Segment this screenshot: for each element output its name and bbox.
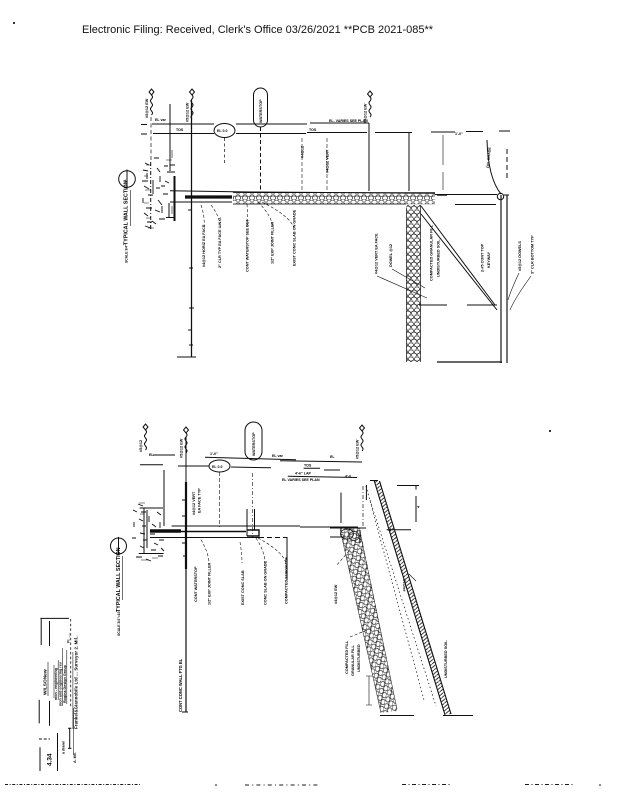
svg-text:Fl. ....: Fl. ....: [67, 633, 71, 643]
svg-text:1/2" EXP JOINT FILLER: 1/2" EXP JOINT FILLER: [271, 222, 275, 264]
svg-text:#4@12: #4@12: [301, 146, 305, 158]
svg-text:COMPACTED FILL: COMPACTED FILL: [345, 640, 349, 674]
svg-text:EL 0.0: EL 0.0: [217, 129, 228, 133]
svg-text:4: 4: [417, 506, 421, 508]
svg-text:EL var: EL var: [155, 118, 167, 122]
svg-text:#4@12 VERT: #4@12 VERT: [192, 491, 196, 515]
svg-text:TYPICAL WALL SECTION: TYPICAL WALL SECTION: [116, 547, 122, 612]
svg-text:a drawn: a drawn: [62, 741, 66, 754]
svg-text:2" CLR TYP EA FACE U.N.O.: 2" CLR TYP EA FACE U.N.O.: [218, 217, 222, 268]
svg-text:#5@12 EW: #5@12 EW: [145, 98, 149, 118]
svg-text:UNDISTURBED SOIL: UNDISTURBED SOIL: [437, 239, 441, 277]
svg-text:SCALE 3/4"=10: SCALE 3/4"=10: [117, 611, 121, 636]
svg-text:WATERSTOP: WATERSTOP: [259, 99, 263, 123]
svg-text:EXIST CONC SLAB: EXIST CONC SLAB: [241, 570, 245, 605]
svg-text:#4@12 HORIZ EA FACE: #4@12 HORIZ EA FACE: [202, 224, 206, 267]
svg-text:#4@12 EW: #4@12 EW: [334, 584, 338, 604]
svg-text:DOWEL @12: DOWEL @12: [389, 244, 393, 267]
svg-text:COMPACTED GRANULAR FILL: COMPACTED GRANULAR FILL: [430, 224, 434, 281]
svg-text:4.34: 4.34: [47, 753, 54, 766]
svg-text:EL: EL: [330, 455, 335, 459]
svg-text:#5@12 EW: #5@12 EW: [180, 438, 184, 458]
svg-text:EXIST CONC SLAB ON GRADE: EXIST CONC SLAB ON GRADE: [293, 209, 297, 266]
svg-text:Frankel&Giannobile Ltd ... Sur: Frankel&Giannobile Ltd ... Surveyor 2. M…: [74, 635, 79, 729]
svg-text:1'-0": 1'-0": [455, 132, 463, 136]
svg-text:#5@12 EW: #5@12 EW: [356, 439, 360, 459]
svg-text:2-#5 CONT TOP: 2-#5 CONT TOP: [481, 243, 485, 272]
svg-text:FIN. GRADE: FIN. GRADE: [486, 146, 492, 168]
svg-text:TOS: TOS: [309, 128, 317, 132]
svg-text:EL 0.0: EL 0.0: [212, 465, 223, 469]
svg-text:#4@12 VERT EA FACE: #4@12 VERT EA FACE: [375, 233, 379, 274]
svg-text:EL VARIES SEE PLAN: EL VARIES SEE PLAN: [282, 478, 320, 482]
svg-text:Electronic Filing: Received, C: Electronic Filing: Received, Clerk's Off…: [82, 24, 434, 36]
svg-text:Rogina Design Group: Rogina Design Group: [63, 664, 67, 703]
svg-text:1'-0": 1'-0": [210, 452, 218, 456]
svg-text:WILSONew: WILSONew: [43, 669, 49, 695]
svg-text:#5@12 EW: #5@12 EW: [364, 103, 368, 123]
svg-text:UNDISTURBED: UNDISTURBED: [357, 644, 361, 672]
svg-text:KEYWAY: KEYWAY: [487, 251, 491, 268]
svg-text:UNDISTURBED SOIL: UNDISTURBED SOIL: [444, 640, 448, 678]
svg-text:3" CLR BOTTOM TYP: 3" CLR BOTTOM TYP: [531, 235, 535, 274]
svg-text:EL. VARIES SEE PLAN: EL. VARIES SEE PLAN: [329, 119, 368, 123]
svg-text:EA FACE TYP: EA FACE TYP: [198, 488, 202, 513]
svg-text:#4@12 VERT: #4@12 VERT: [326, 149, 330, 173]
svg-text:EL var: EL var: [272, 454, 284, 458]
svg-text:#5@12 DOWELS: #5@12 DOWELS: [518, 241, 522, 271]
svg-text:TYPICAL WALL SECTION: TYPICAL WALL SECTION: [124, 180, 130, 245]
svg-text:#4@12: #4@12: [403, 579, 407, 591]
svg-text:GRANULAR FILL: GRANULAR FILL: [351, 645, 355, 676]
svg-text:CONC SLAB ON GRADE: CONC SLAB ON GRADE: [264, 560, 268, 605]
svg-text:4'-6" LAP: 4'-6" LAP: [295, 472, 312, 476]
svg-text:WATERSTOP: WATERSTOP: [252, 432, 256, 456]
svg-text:CONT WATERSTOP: CONT WATERSTOP: [194, 566, 198, 602]
svg-text:EL: EL: [149, 453, 154, 457]
svg-text:CONT WATERSTOP SEE DET: CONT WATERSTOP SEE DET: [246, 219, 250, 272]
svg-text:1/2" EXP JOINT FILLER: 1/2" EXP JOINT FILLER: [208, 563, 212, 605]
svg-text:4'-0: 4'-0: [345, 475, 351, 479]
svg-text:#5@12 EW: #5@12 EW: [186, 102, 190, 122]
svg-text:#5@12: #5@12: [139, 440, 143, 452]
svg-text:COMPACTED SUBGRADE: COMPACTED SUBGRADE: [285, 557, 289, 604]
svg-text:TOS: TOS: [176, 128, 184, 132]
svg-text:mon - engineering: mon - engineering: [54, 668, 58, 700]
svg-text:TOS: TOS: [304, 464, 312, 468]
svg-text:CONT CONC WALL FTG EL: CONT CONC WALL FTG EL: [178, 658, 183, 712]
svg-text:SCALE 3/4": SCALE 3/4": [125, 244, 129, 263]
